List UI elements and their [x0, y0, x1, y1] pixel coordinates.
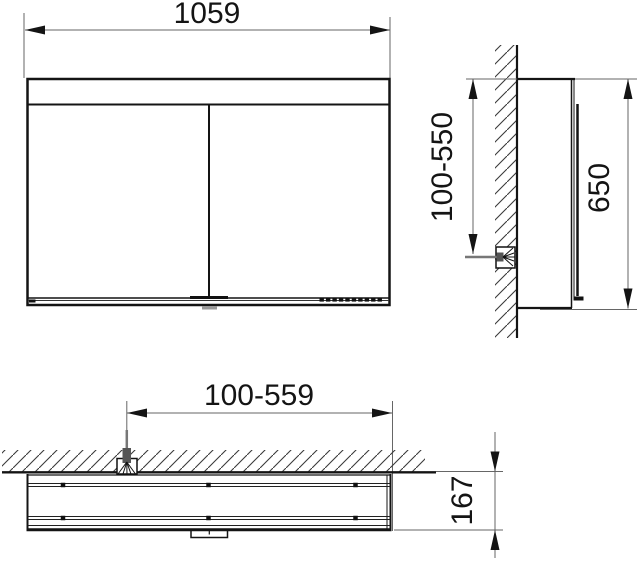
- handle-tab: [202, 306, 217, 310]
- vent-slot: [332, 298, 336, 302]
- vent-slot: [339, 298, 343, 302]
- vent-slot: [365, 298, 369, 302]
- wall-hatch: [2, 450, 425, 472]
- arrow-left-icon: [127, 409, 147, 418]
- cable-end: [123, 448, 132, 463]
- vent-slot: [326, 298, 330, 302]
- dim-cable-range-label: 100-559: [204, 379, 314, 412]
- wall-hatch: [495, 45, 517, 338]
- plan-cabinet-outline: [27, 474, 392, 538]
- fixing-mark: [61, 516, 66, 521]
- fixing-mark: [353, 516, 358, 521]
- fixing-mark: [353, 483, 358, 488]
- side-view: 100-550 650: [426, 45, 637, 338]
- arrow-up-icon: [469, 79, 478, 99]
- vent-slot: [345, 298, 349, 302]
- height-dimension: 650: [583, 79, 633, 309]
- fixing-mark: [206, 516, 211, 521]
- switch-mark: [29, 300, 36, 303]
- width-dimension: 1059: [24, 0, 390, 78]
- technical-drawing-canvas: 1059: [0, 0, 640, 573]
- arrow-left-icon: [25, 26, 45, 35]
- dim-mount-range-label: 100-550: [426, 112, 459, 222]
- arrow-right-icon: [372, 409, 392, 418]
- cable-end: [497, 253, 504, 262]
- fixing-mark: [61, 483, 66, 488]
- door-bottom-profile: [574, 297, 584, 301]
- vent-slot: [352, 298, 356, 302]
- vent-slot: [358, 298, 362, 302]
- arrow-up-icon: [624, 79, 633, 99]
- arrow-right-icon: [370, 26, 390, 35]
- fixing-mark: [206, 483, 211, 488]
- arrow-down-icon: [491, 452, 500, 472]
- front-view: 1059: [24, 0, 390, 310]
- bottom-view: 100-559: [2, 379, 503, 558]
- vent-slot: [371, 298, 375, 302]
- technical-drawing-page: 1059: [0, 0, 640, 573]
- arrow-down-icon: [469, 234, 478, 254]
- dim-height-label: 650: [583, 163, 616, 213]
- dim-width-label: 1059: [174, 0, 241, 30]
- arrow-up-icon: [491, 530, 500, 550]
- vent-slot: [320, 298, 324, 302]
- handle-strip: [190, 296, 228, 299]
- vent-slot: [378, 298, 382, 302]
- dim-depth-label: 167: [446, 475, 479, 525]
- arrow-down-icon: [624, 289, 633, 309]
- mount-range-dimension: 100-550: [426, 79, 478, 254]
